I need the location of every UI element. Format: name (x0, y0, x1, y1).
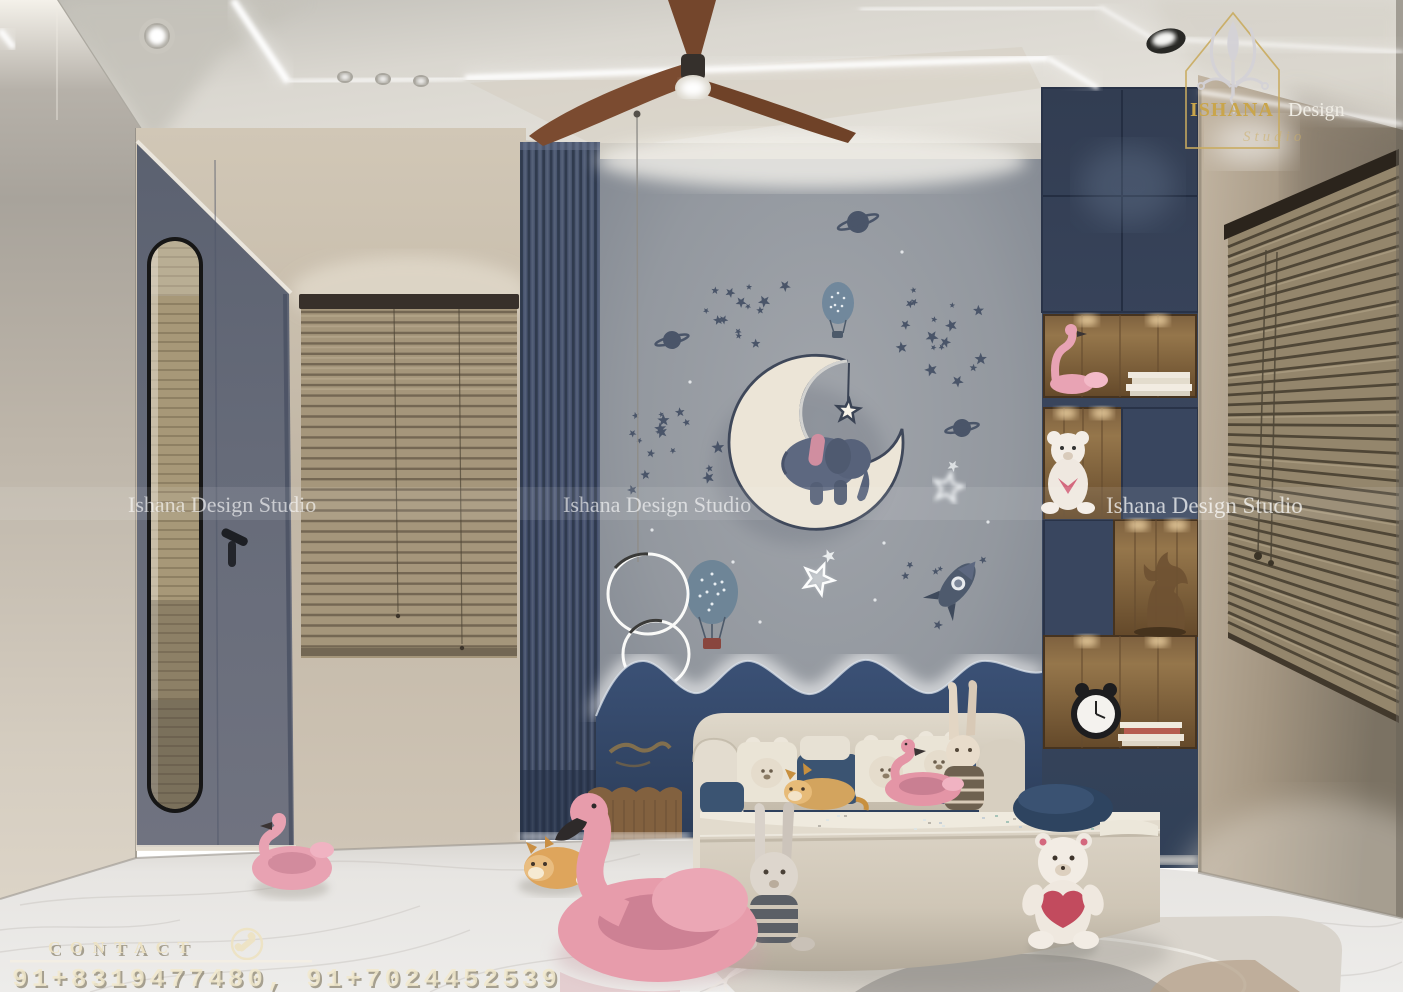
svg-text:Ishana Design Studio: Ishana Design Studio (563, 492, 751, 517)
svg-text:Ishana Design Studio: Ishana Design Studio (1106, 493, 1303, 518)
svg-text:Design: Design (1288, 99, 1345, 121)
svg-text:ISHANA: ISHANA (1190, 99, 1274, 121)
svg-text:Ishana Design Studio: Ishana Design Studio (128, 492, 316, 517)
svg-text:CONTACT: CONTACT (48, 938, 198, 957)
svg-text:Studio: Studio (1243, 129, 1305, 145)
svg-text:91+8319477480, 91+7024452539: 91+8319477480, 91+7024452539 (12, 964, 561, 992)
